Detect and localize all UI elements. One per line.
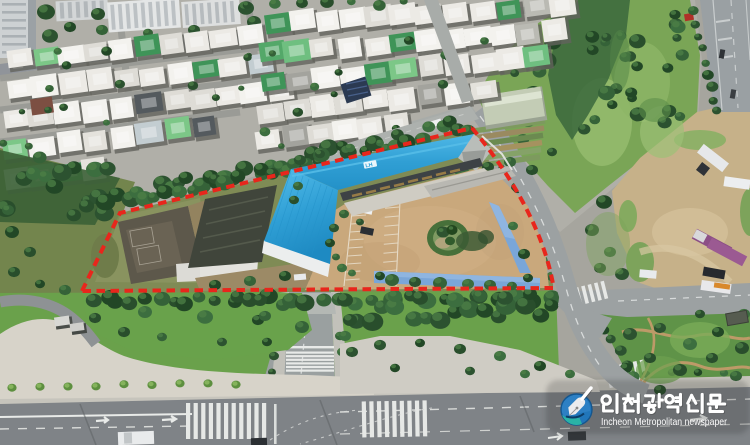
svg-text:Incheon Metropolitan newspaper: Incheon Metropolitan newspaper (601, 417, 727, 428)
